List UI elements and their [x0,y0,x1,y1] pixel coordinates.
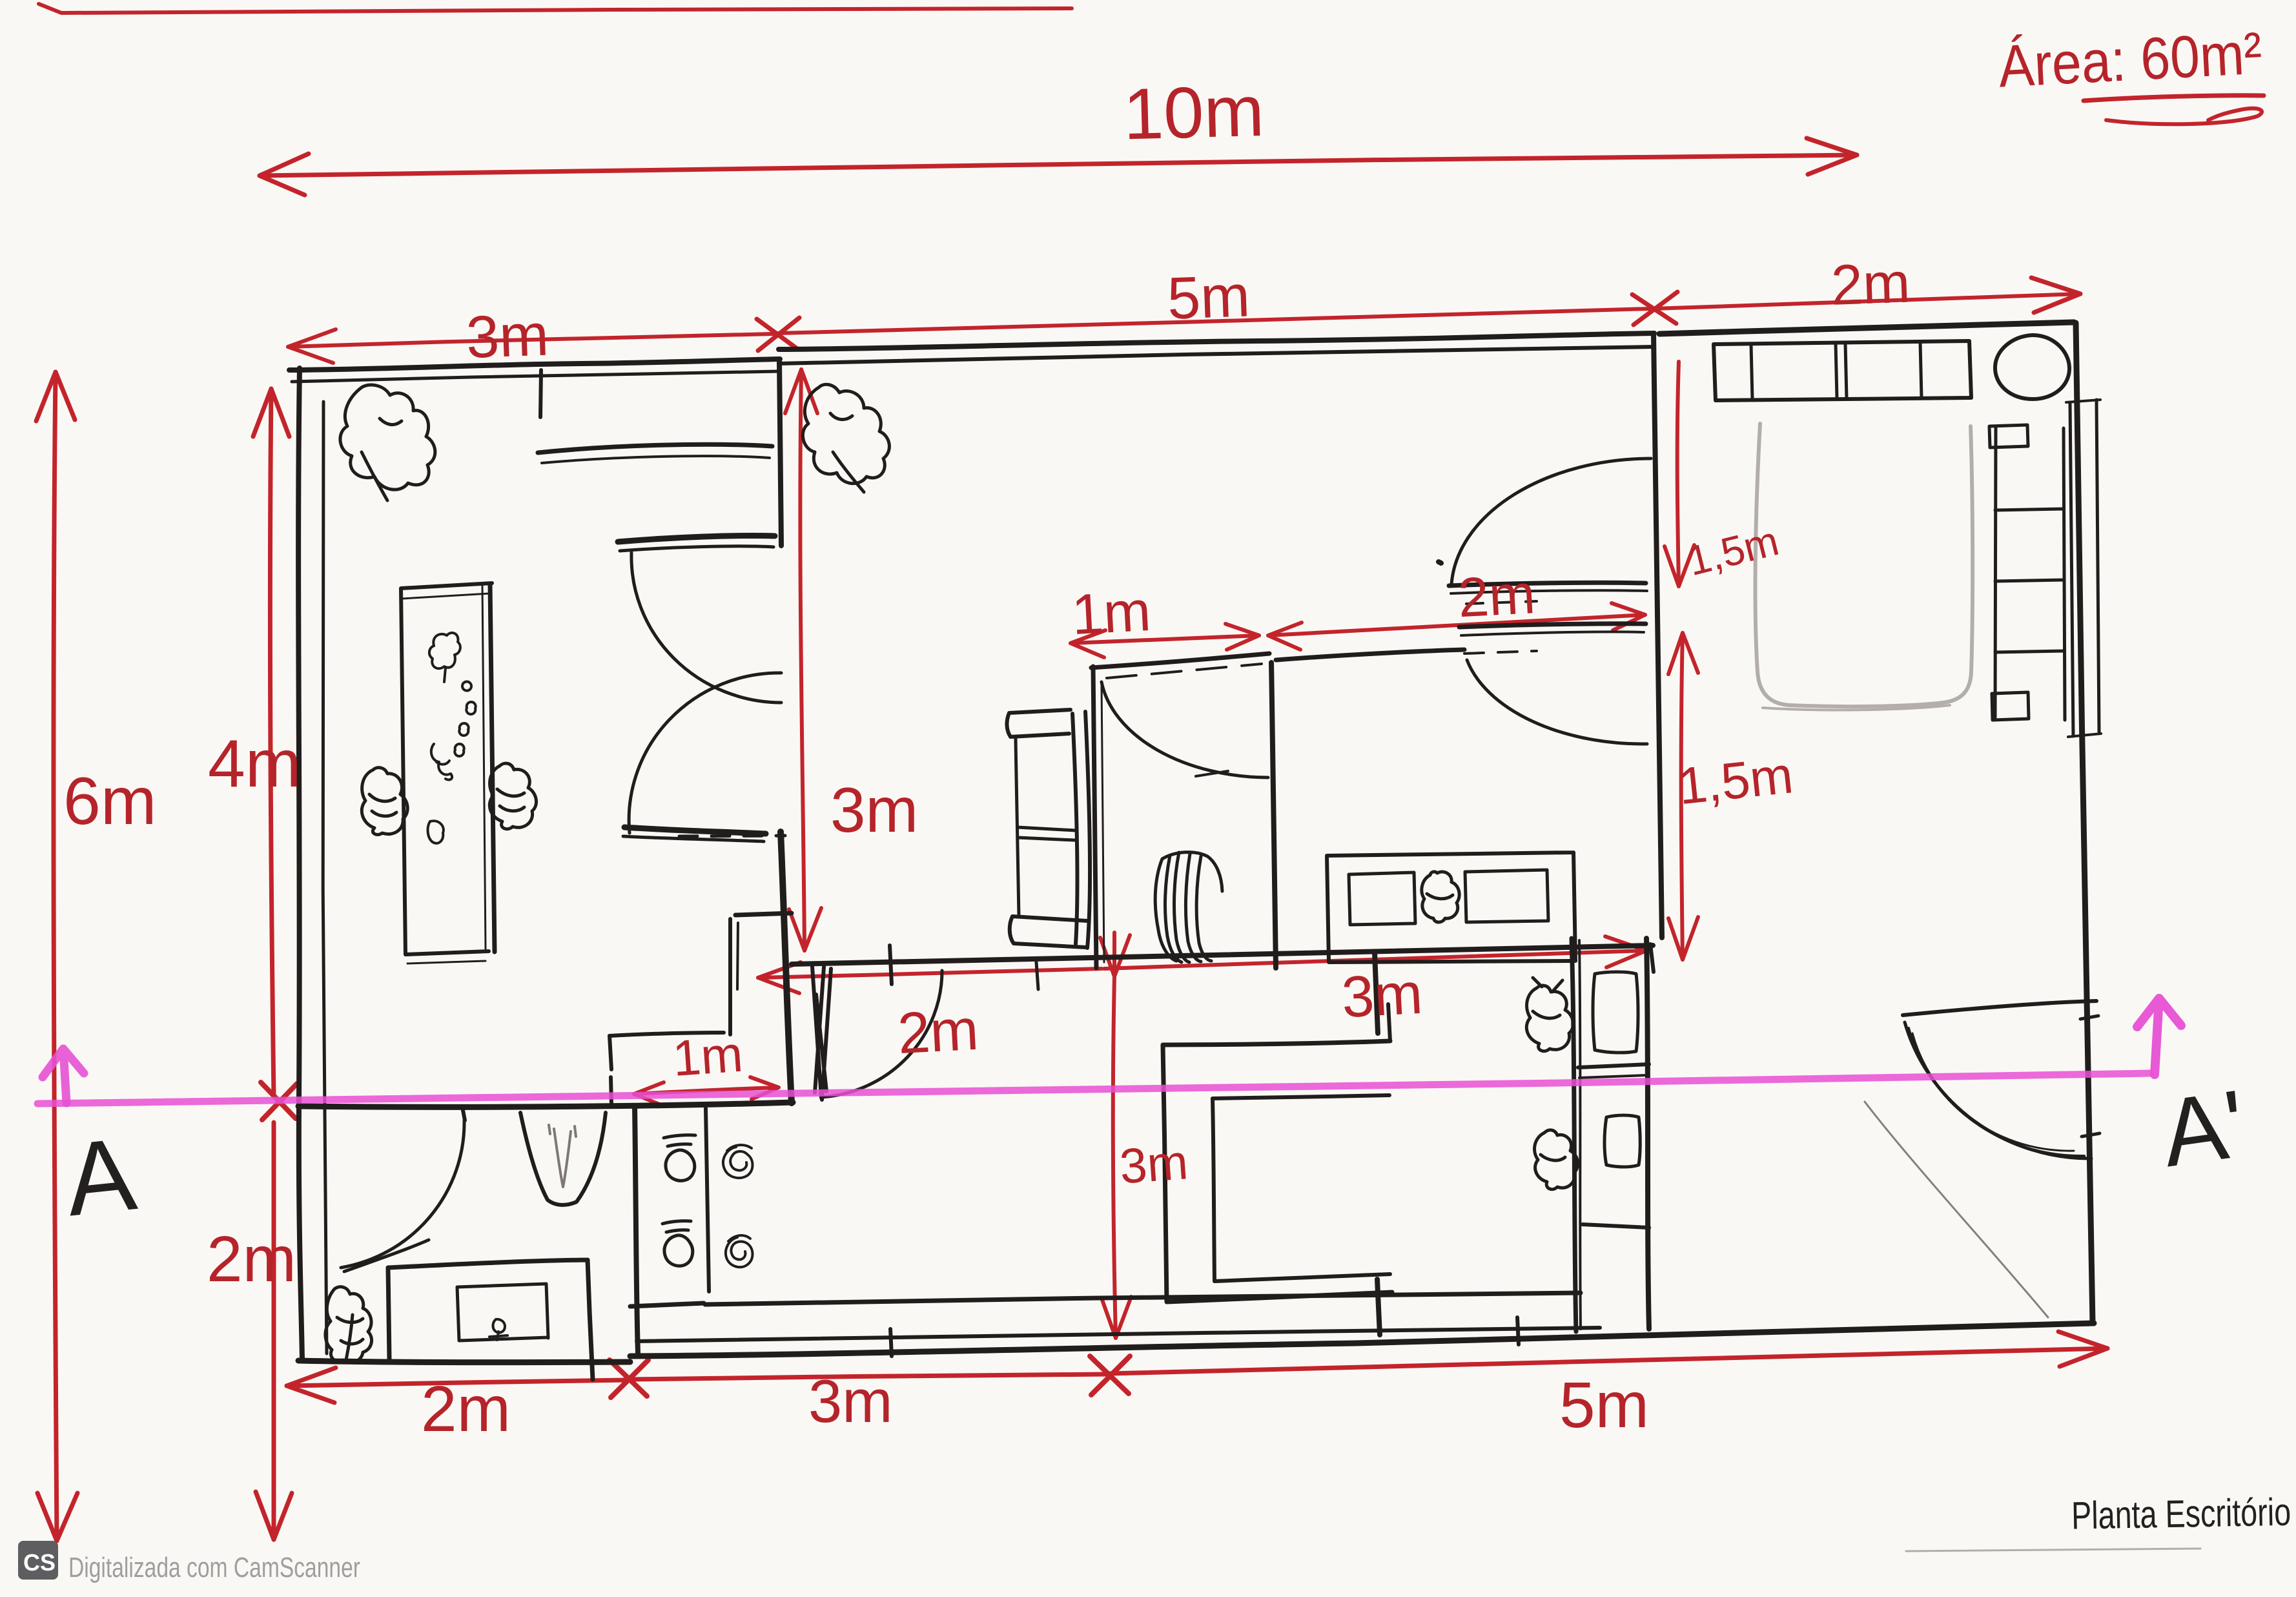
svg-text:5m: 5m [1166,263,1251,331]
svg-text:2m: 2m [896,998,980,1066]
svg-text:Área: 60m²: Área: 60m² [1997,20,2264,99]
svg-text:A': A' [2155,1070,2251,1187]
svg-text:6m: 6m [63,764,156,839]
svg-text:1,5m: 1,5m [1676,746,1796,815]
svg-text:1,5m: 1,5m [1683,517,1783,584]
svg-text:1m: 1m [1070,579,1152,646]
svg-text:3m: 3m [1340,962,1424,1030]
svg-text:Digitalizada com CamScanner: Digitalizada com CamScanner [68,1552,360,1583]
svg-text:A: A [60,1115,141,1237]
svg-text:2m: 2m [1457,563,1537,629]
svg-text:3m: 3m [465,302,549,371]
svg-text:10m: 10m [1122,70,1265,155]
svg-text:CS: CS [23,1549,56,1576]
svg-text:3m: 3m [808,1367,893,1435]
svg-text:2m: 2m [207,1223,296,1295]
svg-text:3m: 3m [830,774,918,845]
svg-text:4m: 4m [208,726,301,801]
svg-text:Planta Escritório: Planta Escritório [2071,1490,2291,1538]
svg-text:2m: 2m [421,1373,511,1445]
svg-text:1m: 1m [671,1025,744,1087]
svg-text:5m: 5m [1559,1369,1649,1441]
svg-text:2m: 2m [1830,251,1911,317]
svg-text:3m: 3m [1118,1135,1189,1194]
